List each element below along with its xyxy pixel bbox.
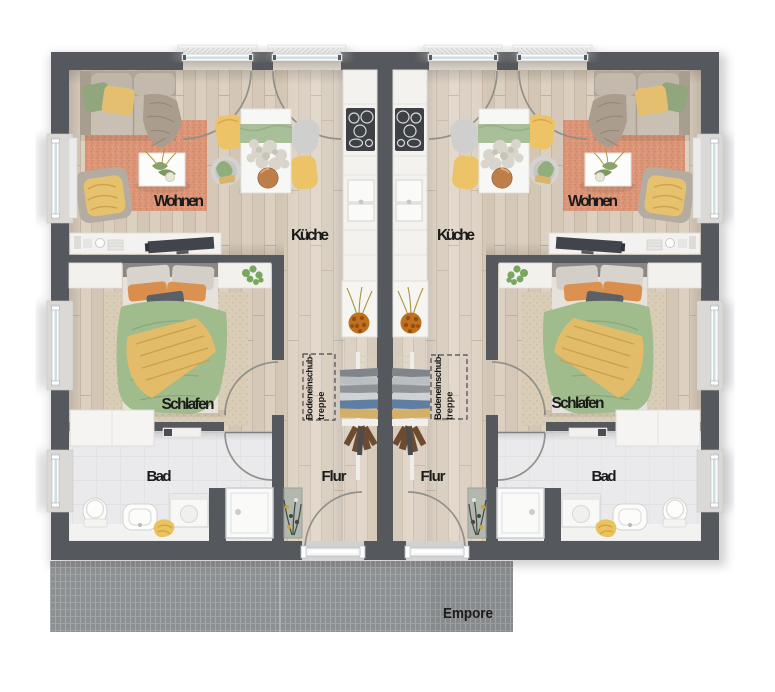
svg-text:Küche: Küche bbox=[437, 227, 475, 244]
svg-text:Schlafen: Schlafen bbox=[552, 395, 605, 412]
svg-text:Flur: Flur bbox=[421, 468, 446, 485]
svg-text:Wohnen: Wohnen bbox=[154, 193, 204, 210]
svg-text:Schlafen: Schlafen bbox=[162, 396, 215, 413]
svg-text:treppe: treppe bbox=[316, 392, 326, 420]
svg-text:Bodeneinschub-: Bodeneinschub- bbox=[305, 354, 315, 420]
svg-text:Wohnen: Wohnen bbox=[568, 193, 618, 210]
svg-text:Flur: Flur bbox=[322, 468, 347, 485]
svg-text:Bodeneinschub-: Bodeneinschub- bbox=[433, 354, 443, 420]
svg-text:Empore: Empore bbox=[443, 606, 493, 622]
svg-text:Bad: Bad bbox=[592, 468, 617, 485]
svg-text:treppe: treppe bbox=[445, 392, 455, 420]
svg-text:Küche: Küche bbox=[291, 227, 329, 244]
svg-text:Bad: Bad bbox=[147, 468, 172, 485]
